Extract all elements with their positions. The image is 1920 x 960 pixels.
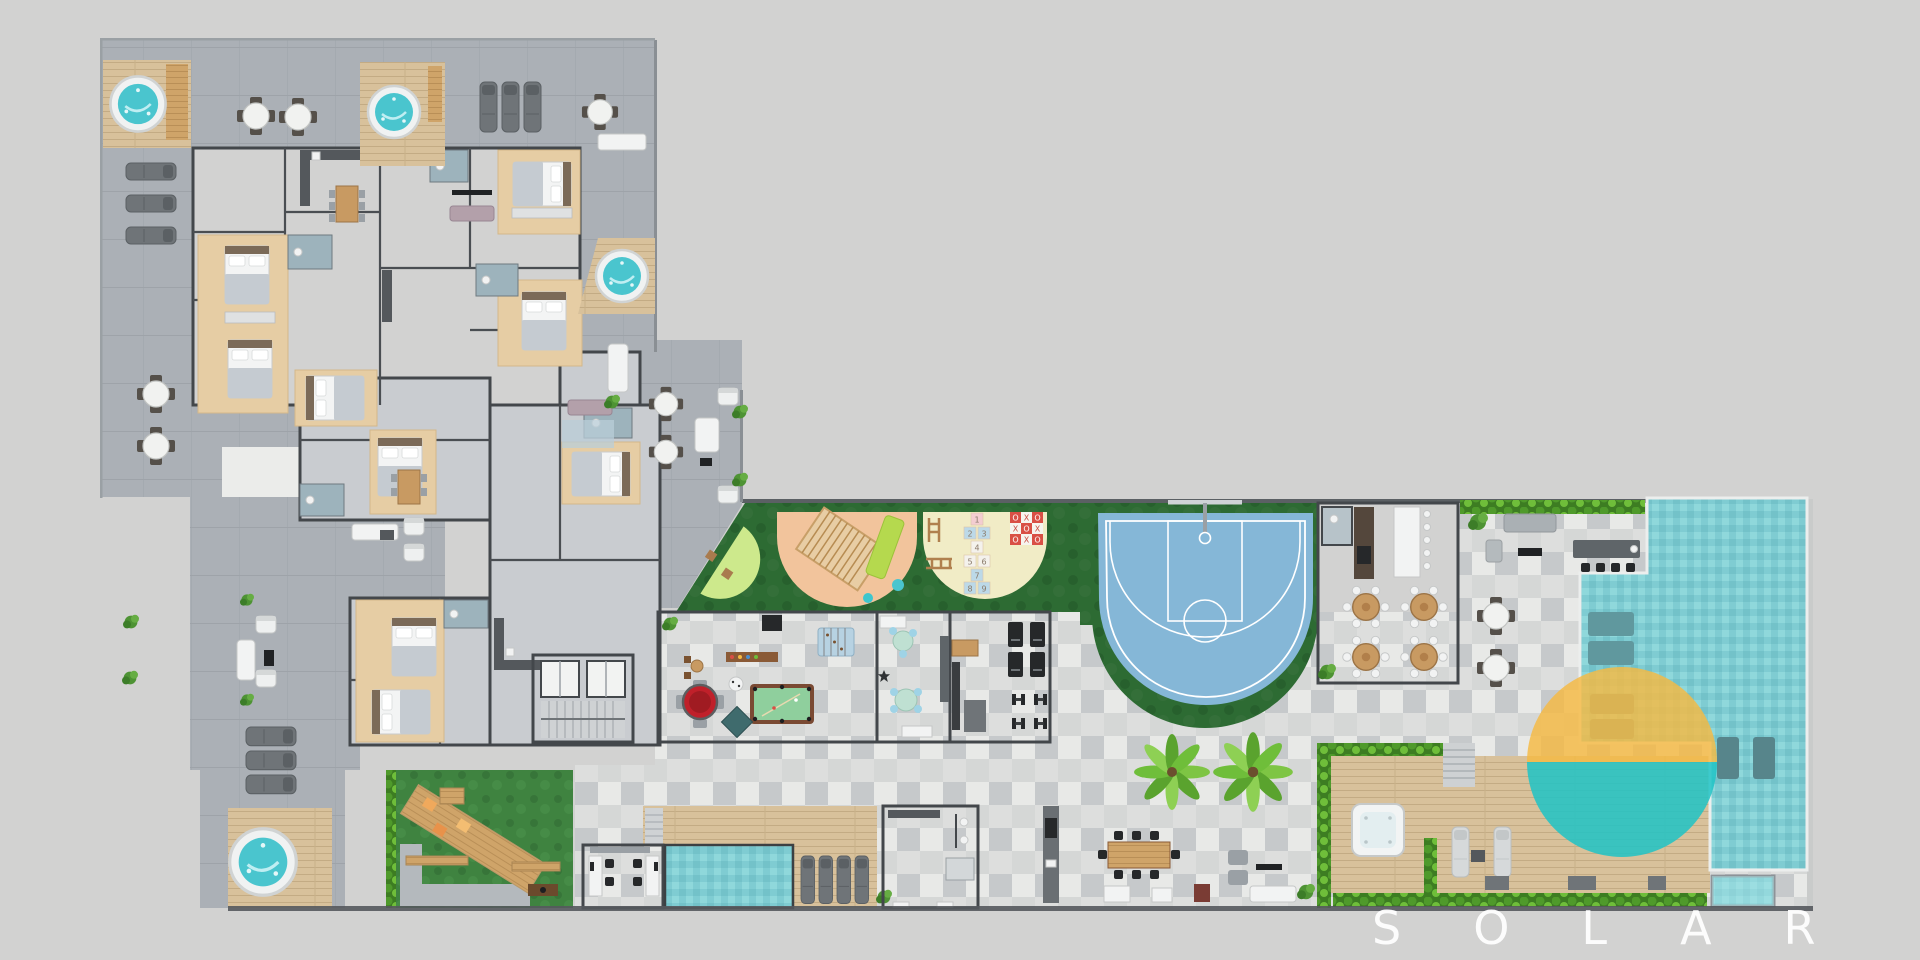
bench	[512, 862, 560, 871]
deck-lounger	[1648, 876, 1666, 890]
patio-armchair	[1228, 870, 1248, 885]
office-chair	[605, 877, 614, 886]
hot-tub-2	[368, 86, 420, 138]
spa-square	[1352, 804, 1404, 856]
svg-text:O: O	[1023, 525, 1029, 534]
patio-armchair	[1228, 850, 1248, 865]
hot-tub-1	[110, 76, 165, 131]
sofa	[450, 206, 494, 221]
lounge-sofa	[1504, 514, 1556, 532]
rug	[562, 420, 614, 448]
office-chair	[633, 859, 642, 868]
serving-cart	[1152, 888, 1172, 902]
office-chair	[605, 859, 614, 868]
staircase	[541, 701, 625, 738]
gym-shelf	[952, 640, 978, 656]
shower	[946, 858, 974, 880]
kids-bench	[940, 636, 949, 702]
svg-text:7: 7	[974, 572, 979, 581]
wardrobe	[512, 208, 572, 218]
grill-cart	[1194, 884, 1210, 902]
hot-tub-3	[596, 250, 648, 302]
svg-text:O: O	[1034, 536, 1040, 545]
wardrobe	[225, 312, 275, 323]
exercise-mat	[964, 700, 986, 732]
toilet	[960, 818, 968, 826]
bbq-table	[1108, 842, 1170, 868]
svg-text:9: 9	[981, 585, 986, 594]
lounge-armchair	[1486, 540, 1502, 562]
changing-table	[880, 616, 906, 628]
svg-text:8: 8	[967, 585, 972, 594]
sink	[1046, 860, 1056, 867]
svg-text:4: 4	[974, 544, 979, 553]
svg-text:X: X	[1035, 525, 1041, 534]
lockers	[888, 810, 940, 818]
svg-text:O: O	[1012, 514, 1018, 523]
svg-text:O: O	[1034, 514, 1040, 523]
tv	[452, 190, 492, 195]
office-chair	[633, 877, 642, 886]
outdoor-tv	[1256, 864, 1282, 870]
svg-text:O: O	[1012, 536, 1018, 545]
picnic-table	[440, 788, 464, 804]
lap-pool-deck	[643, 806, 877, 845]
toilet	[960, 836, 968, 844]
kitchen-counter	[1354, 507, 1374, 579]
svg-text:3: 3	[981, 530, 986, 539]
fridge	[762, 615, 782, 631]
svg-text:5: 5	[967, 558, 972, 567]
deck-steps	[645, 808, 663, 844]
billiards-table	[750, 684, 814, 724]
lap-pool	[665, 845, 793, 908]
picnic-lawn	[386, 770, 573, 908]
terrace-sofa	[598, 134, 646, 150]
floor-plan-render: 1 2 3 4 5 6 7 8 9 O X O X O X O X O	[0, 0, 1920, 960]
hedge-strip	[1460, 500, 1645, 514]
palm-tree-2	[1213, 732, 1293, 812]
grill	[1045, 818, 1057, 838]
deck-lounger	[1485, 876, 1509, 890]
tv-console	[1518, 548, 1542, 556]
gym-mirror	[952, 662, 960, 730]
game-table	[729, 677, 743, 691]
deck-lounger	[1568, 876, 1596, 890]
hot-tub-4	[230, 829, 297, 896]
bench	[406, 856, 468, 865]
party-hall-bathroom	[1322, 507, 1352, 545]
kitchen-island	[1394, 507, 1420, 577]
svg-text:X: X	[1024, 514, 1030, 523]
palm-tree-1	[1134, 734, 1210, 810]
kids-table	[895, 689, 917, 711]
svg-text:X: X	[1024, 536, 1030, 545]
svg-text:1: 1	[974, 516, 979, 525]
watermark-solar: SOLAR	[1372, 901, 1888, 955]
foosball-table	[818, 628, 854, 656]
svg-text:6: 6	[981, 558, 986, 567]
stove	[1357, 546, 1371, 564]
sun-logo	[1527, 667, 1717, 857]
deck-stairs	[1443, 743, 1475, 787]
pool-bar-counter	[1573, 540, 1640, 558]
terrace-loveseat	[608, 344, 628, 392]
svg-text:X: X	[1013, 525, 1019, 534]
svg-text:2: 2	[967, 530, 972, 539]
outdoor-sofa	[237, 640, 255, 680]
patio-sofa	[1250, 886, 1296, 902]
outdoor-sofa	[695, 418, 719, 452]
tic-tac-toe: O X O X O X O X O	[1010, 512, 1043, 545]
